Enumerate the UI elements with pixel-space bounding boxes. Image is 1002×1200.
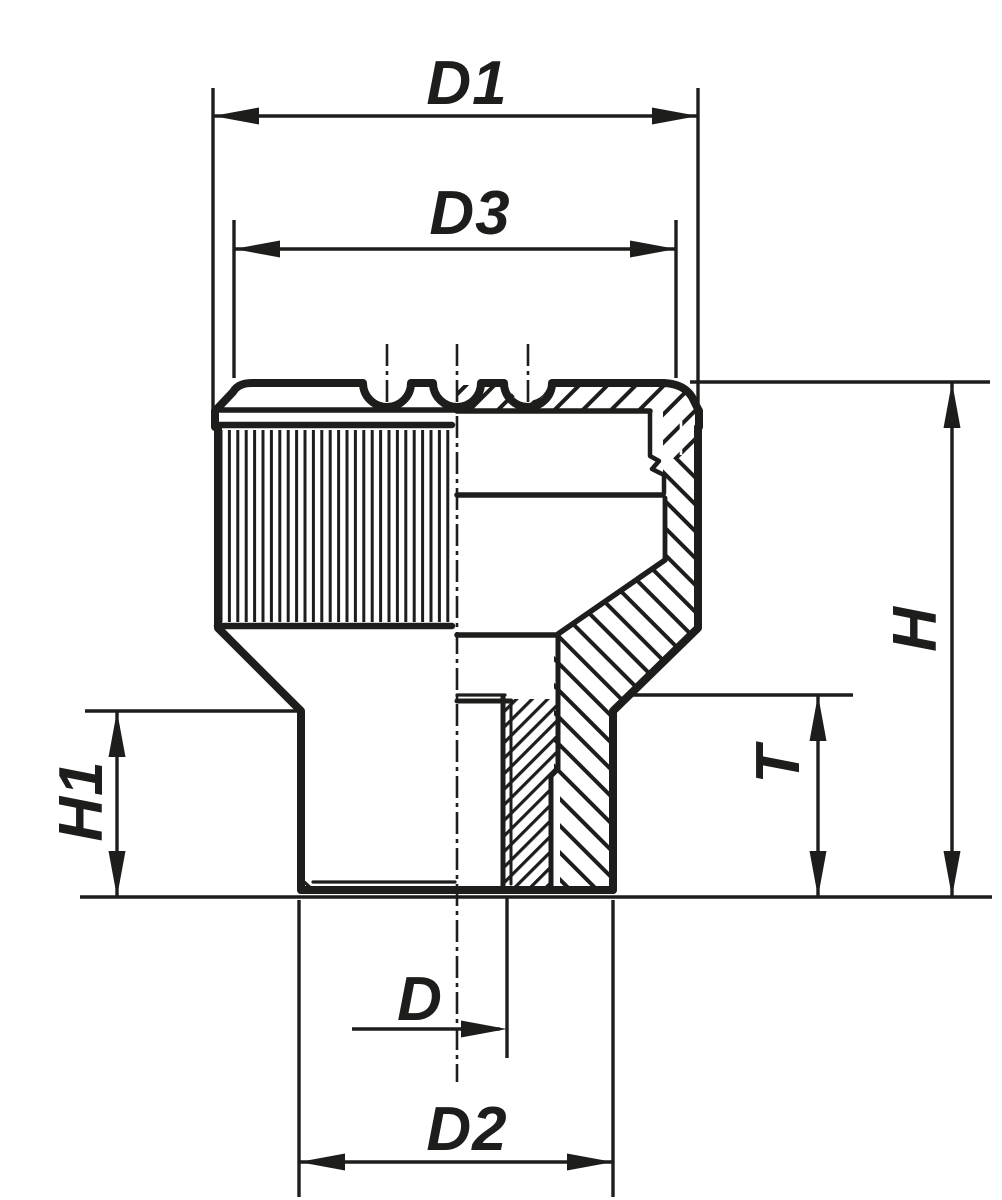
label-d: D (397, 965, 443, 1034)
d2-arrow-left (299, 1154, 345, 1171)
label-d2: D2 (426, 1095, 507, 1164)
knob-section-drawing: D1 D3 H H1 T D D2 (0, 0, 1002, 1200)
knurling (221, 430, 448, 622)
d2-arrow-right (567, 1154, 613, 1171)
h-arrow-bottom (944, 851, 961, 897)
section-hatching (457, 359, 699, 890)
t-arrow-bottom (810, 851, 827, 897)
dimension-d1 (213, 88, 698, 421)
label-h1: H1 (47, 760, 116, 841)
d-arrow (461, 1021, 507, 1038)
h-arrow-top (944, 382, 961, 428)
label-t: T (744, 740, 813, 783)
dimension-labels: D1 D3 H H1 T D D2 (47, 49, 950, 1164)
body-section-hatch (554, 458, 697, 890)
label-h: H (881, 606, 950, 652)
label-d3: D3 (429, 179, 510, 248)
d1-arrow-left (213, 108, 259, 125)
d3-arrow-left (234, 241, 280, 258)
d3-arrow-right (630, 241, 676, 258)
h1-arrow-bottom (109, 851, 126, 897)
h1-arrow-top (109, 711, 126, 757)
t-arrow-top (810, 695, 827, 741)
dimension-h1 (85, 711, 301, 897)
dimension-t (630, 695, 853, 897)
cap-section-hatch (457, 385, 699, 458)
dimensions (80, 88, 992, 1197)
d1-arrow-right (652, 108, 698, 125)
label-d1: D1 (426, 49, 507, 118)
cavity-wall-with-snap-notch (650, 412, 664, 493)
technical-drawing-page: D1 D3 H H1 T D D2 (0, 0, 1002, 1200)
